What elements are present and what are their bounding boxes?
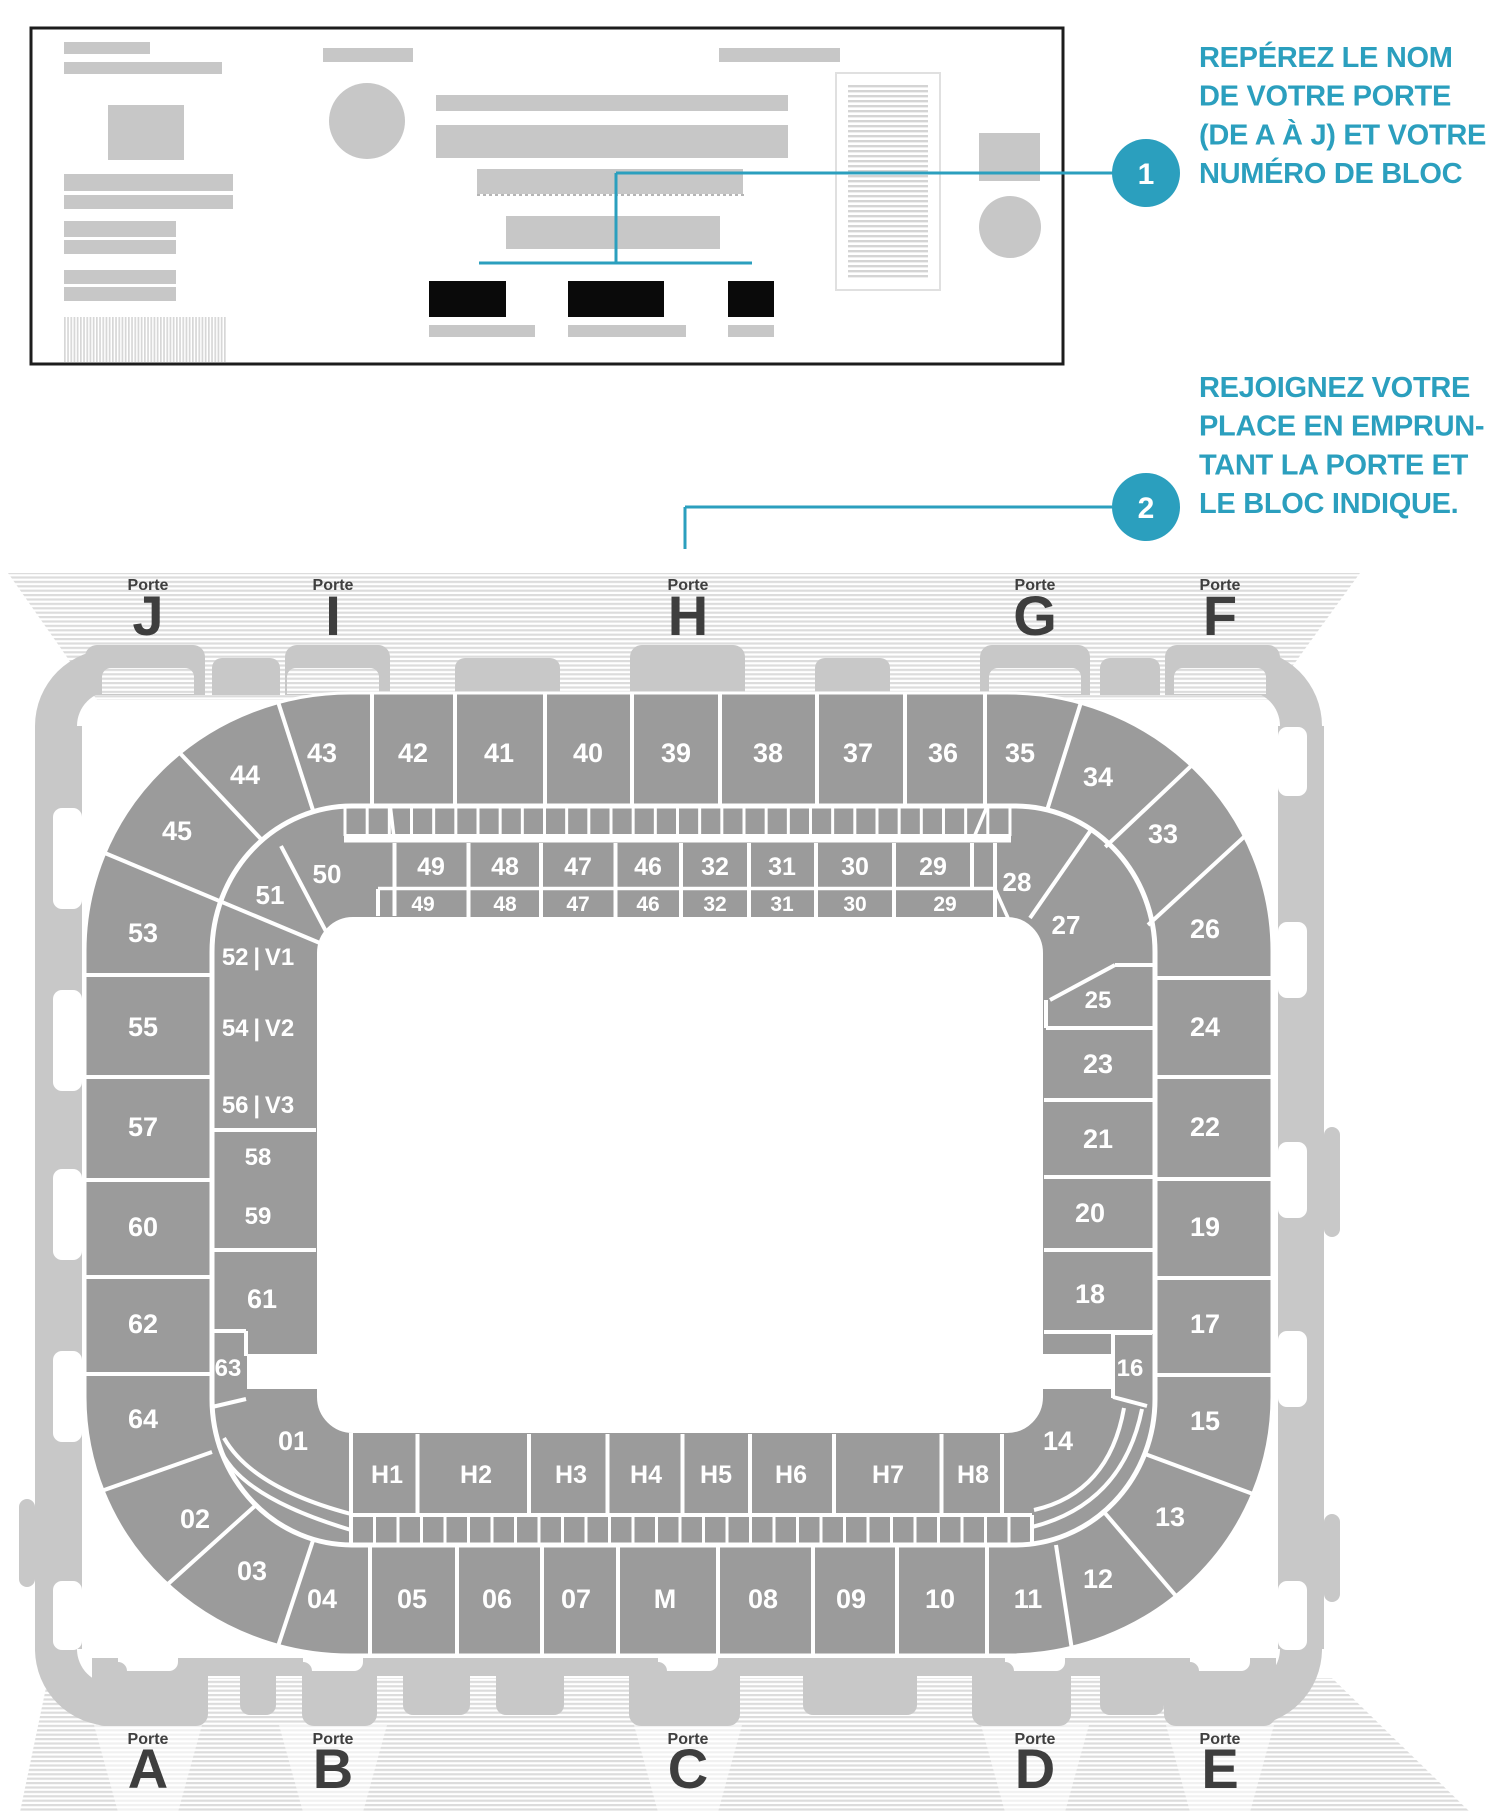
svg-text:09: 09 <box>836 1584 866 1614</box>
svg-text:05: 05 <box>397 1584 427 1614</box>
svg-text:23: 23 <box>1083 1049 1113 1079</box>
svg-text:53: 53 <box>128 918 158 948</box>
svg-text:H: H <box>668 584 708 647</box>
svg-text:J: J <box>132 584 163 647</box>
svg-text:10: 10 <box>925 1584 955 1614</box>
svg-text:50: 50 <box>313 859 342 889</box>
svg-text:REJOIGNEZ VOTRE: REJOIGNEZ VOTRE <box>1199 372 1470 404</box>
svg-text:NUMÉRO DE BLOC: NUMÉRO DE BLOC <box>1199 156 1463 190</box>
svg-text:35: 35 <box>1005 738 1035 768</box>
svg-text:I: I <box>325 584 341 647</box>
svg-text:31: 31 <box>770 893 794 916</box>
svg-text:47: 47 <box>566 893 589 916</box>
svg-text:42: 42 <box>398 738 428 768</box>
svg-text:21: 21 <box>1083 1124 1113 1154</box>
svg-text:C: C <box>668 1737 708 1800</box>
svg-text:H2: H2 <box>460 1461 492 1489</box>
svg-text:46: 46 <box>636 893 659 916</box>
svg-text:52 | V1: 52 | V1 <box>222 944 294 971</box>
svg-text:60: 60 <box>128 1212 158 1242</box>
svg-text:31: 31 <box>768 853 796 881</box>
svg-text:24: 24 <box>1190 1012 1220 1042</box>
svg-text:1: 1 <box>1138 158 1155 191</box>
svg-text:28: 28 <box>1003 867 1032 897</box>
svg-text:38: 38 <box>753 738 783 768</box>
svg-text:55: 55 <box>128 1012 158 1042</box>
svg-text:46: 46 <box>634 853 662 881</box>
svg-text:59: 59 <box>245 1203 272 1230</box>
svg-text:18: 18 <box>1075 1279 1105 1309</box>
svg-text:06: 06 <box>482 1584 512 1614</box>
svg-text:M: M <box>654 1584 677 1614</box>
svg-text:E: E <box>1201 1737 1238 1800</box>
svg-text:56 | V3: 56 | V3 <box>222 1092 294 1119</box>
svg-text:PLACE EN EMPRUN-: PLACE EN EMPRUN- <box>1199 411 1484 443</box>
svg-text:49: 49 <box>411 893 434 916</box>
svg-text:17: 17 <box>1190 1309 1220 1339</box>
svg-text:33: 33 <box>1148 819 1178 849</box>
svg-text:30: 30 <box>843 893 866 916</box>
svg-text:08: 08 <box>748 1584 778 1614</box>
svg-text:26: 26 <box>1190 914 1220 944</box>
svg-text:H3: H3 <box>555 1461 587 1489</box>
svg-text:H8: H8 <box>957 1461 989 1489</box>
svg-text:41: 41 <box>484 738 514 768</box>
svg-text:25: 25 <box>1085 987 1112 1014</box>
svg-text:DE VOTRE PORTE: DE VOTRE PORTE <box>1199 81 1451 113</box>
svg-text:01: 01 <box>278 1426 308 1456</box>
svg-text:32: 32 <box>703 893 726 916</box>
svg-text:36: 36 <box>928 738 958 768</box>
svg-text:H1: H1 <box>371 1461 403 1489</box>
svg-text:62: 62 <box>128 1309 158 1339</box>
svg-text:14: 14 <box>1043 1426 1073 1456</box>
svg-text:13: 13 <box>1155 1502 1185 1532</box>
svg-text:45: 45 <box>162 816 192 846</box>
svg-text:37: 37 <box>843 738 873 768</box>
svg-text:12: 12 <box>1083 1564 1113 1594</box>
svg-text:(DE A À J) ET VOTRE: (DE A À J) ET VOTRE <box>1199 117 1486 151</box>
svg-text:61: 61 <box>247 1284 277 1314</box>
svg-text:49: 49 <box>417 853 445 881</box>
svg-text:02: 02 <box>180 1504 210 1534</box>
svg-text:H5: H5 <box>700 1461 732 1489</box>
svg-text:B: B <box>313 1737 353 1800</box>
svg-text:22: 22 <box>1190 1112 1220 1142</box>
svg-text:48: 48 <box>491 853 519 881</box>
svg-text:27: 27 <box>1052 910 1081 940</box>
svg-text:A: A <box>128 1737 168 1800</box>
svg-text:40: 40 <box>573 738 603 768</box>
svg-text:44: 44 <box>230 760 260 790</box>
svg-text:32: 32 <box>701 853 729 881</box>
svg-text:11: 11 <box>1014 1584 1043 1614</box>
svg-text:F: F <box>1203 584 1237 647</box>
svg-text:30: 30 <box>841 853 869 881</box>
svg-text:19: 19 <box>1190 1212 1220 1242</box>
svg-text:20: 20 <box>1075 1198 1105 1228</box>
svg-text:48: 48 <box>493 893 517 916</box>
svg-text:G: G <box>1013 584 1057 647</box>
svg-text:H7: H7 <box>872 1461 904 1489</box>
svg-text:H4: H4 <box>630 1461 662 1489</box>
svg-text:03: 03 <box>237 1556 267 1586</box>
svg-text:43: 43 <box>307 738 337 768</box>
svg-text:47: 47 <box>564 853 592 881</box>
svg-text:29: 29 <box>919 853 947 881</box>
svg-text:54 | V2: 54 | V2 <box>222 1015 294 1042</box>
svg-text:39: 39 <box>661 738 691 768</box>
svg-text:57: 57 <box>128 1112 158 1142</box>
svg-text:58: 58 <box>245 1144 272 1171</box>
svg-text:REPÉREZ LE NOM: REPÉREZ LE NOM <box>1199 40 1453 74</box>
svg-text:15: 15 <box>1190 1406 1220 1436</box>
svg-text:H6: H6 <box>775 1461 807 1489</box>
svg-text:D: D <box>1015 1737 1055 1800</box>
svg-text:LE BLOC INDIQUE.: LE BLOC INDIQUE. <box>1199 488 1458 520</box>
svg-text:63: 63 <box>215 1355 242 1382</box>
svg-text:04: 04 <box>307 1584 337 1614</box>
svg-text:2: 2 <box>1138 492 1155 525</box>
svg-text:16: 16 <box>1117 1355 1144 1382</box>
svg-text:64: 64 <box>128 1404 158 1434</box>
svg-text:29: 29 <box>933 893 956 916</box>
svg-text:34: 34 <box>1083 762 1113 792</box>
svg-text:51: 51 <box>256 880 285 910</box>
svg-text:TANT LA PORTE ET: TANT LA PORTE ET <box>1199 449 1469 481</box>
svg-text:07: 07 <box>561 1584 591 1614</box>
